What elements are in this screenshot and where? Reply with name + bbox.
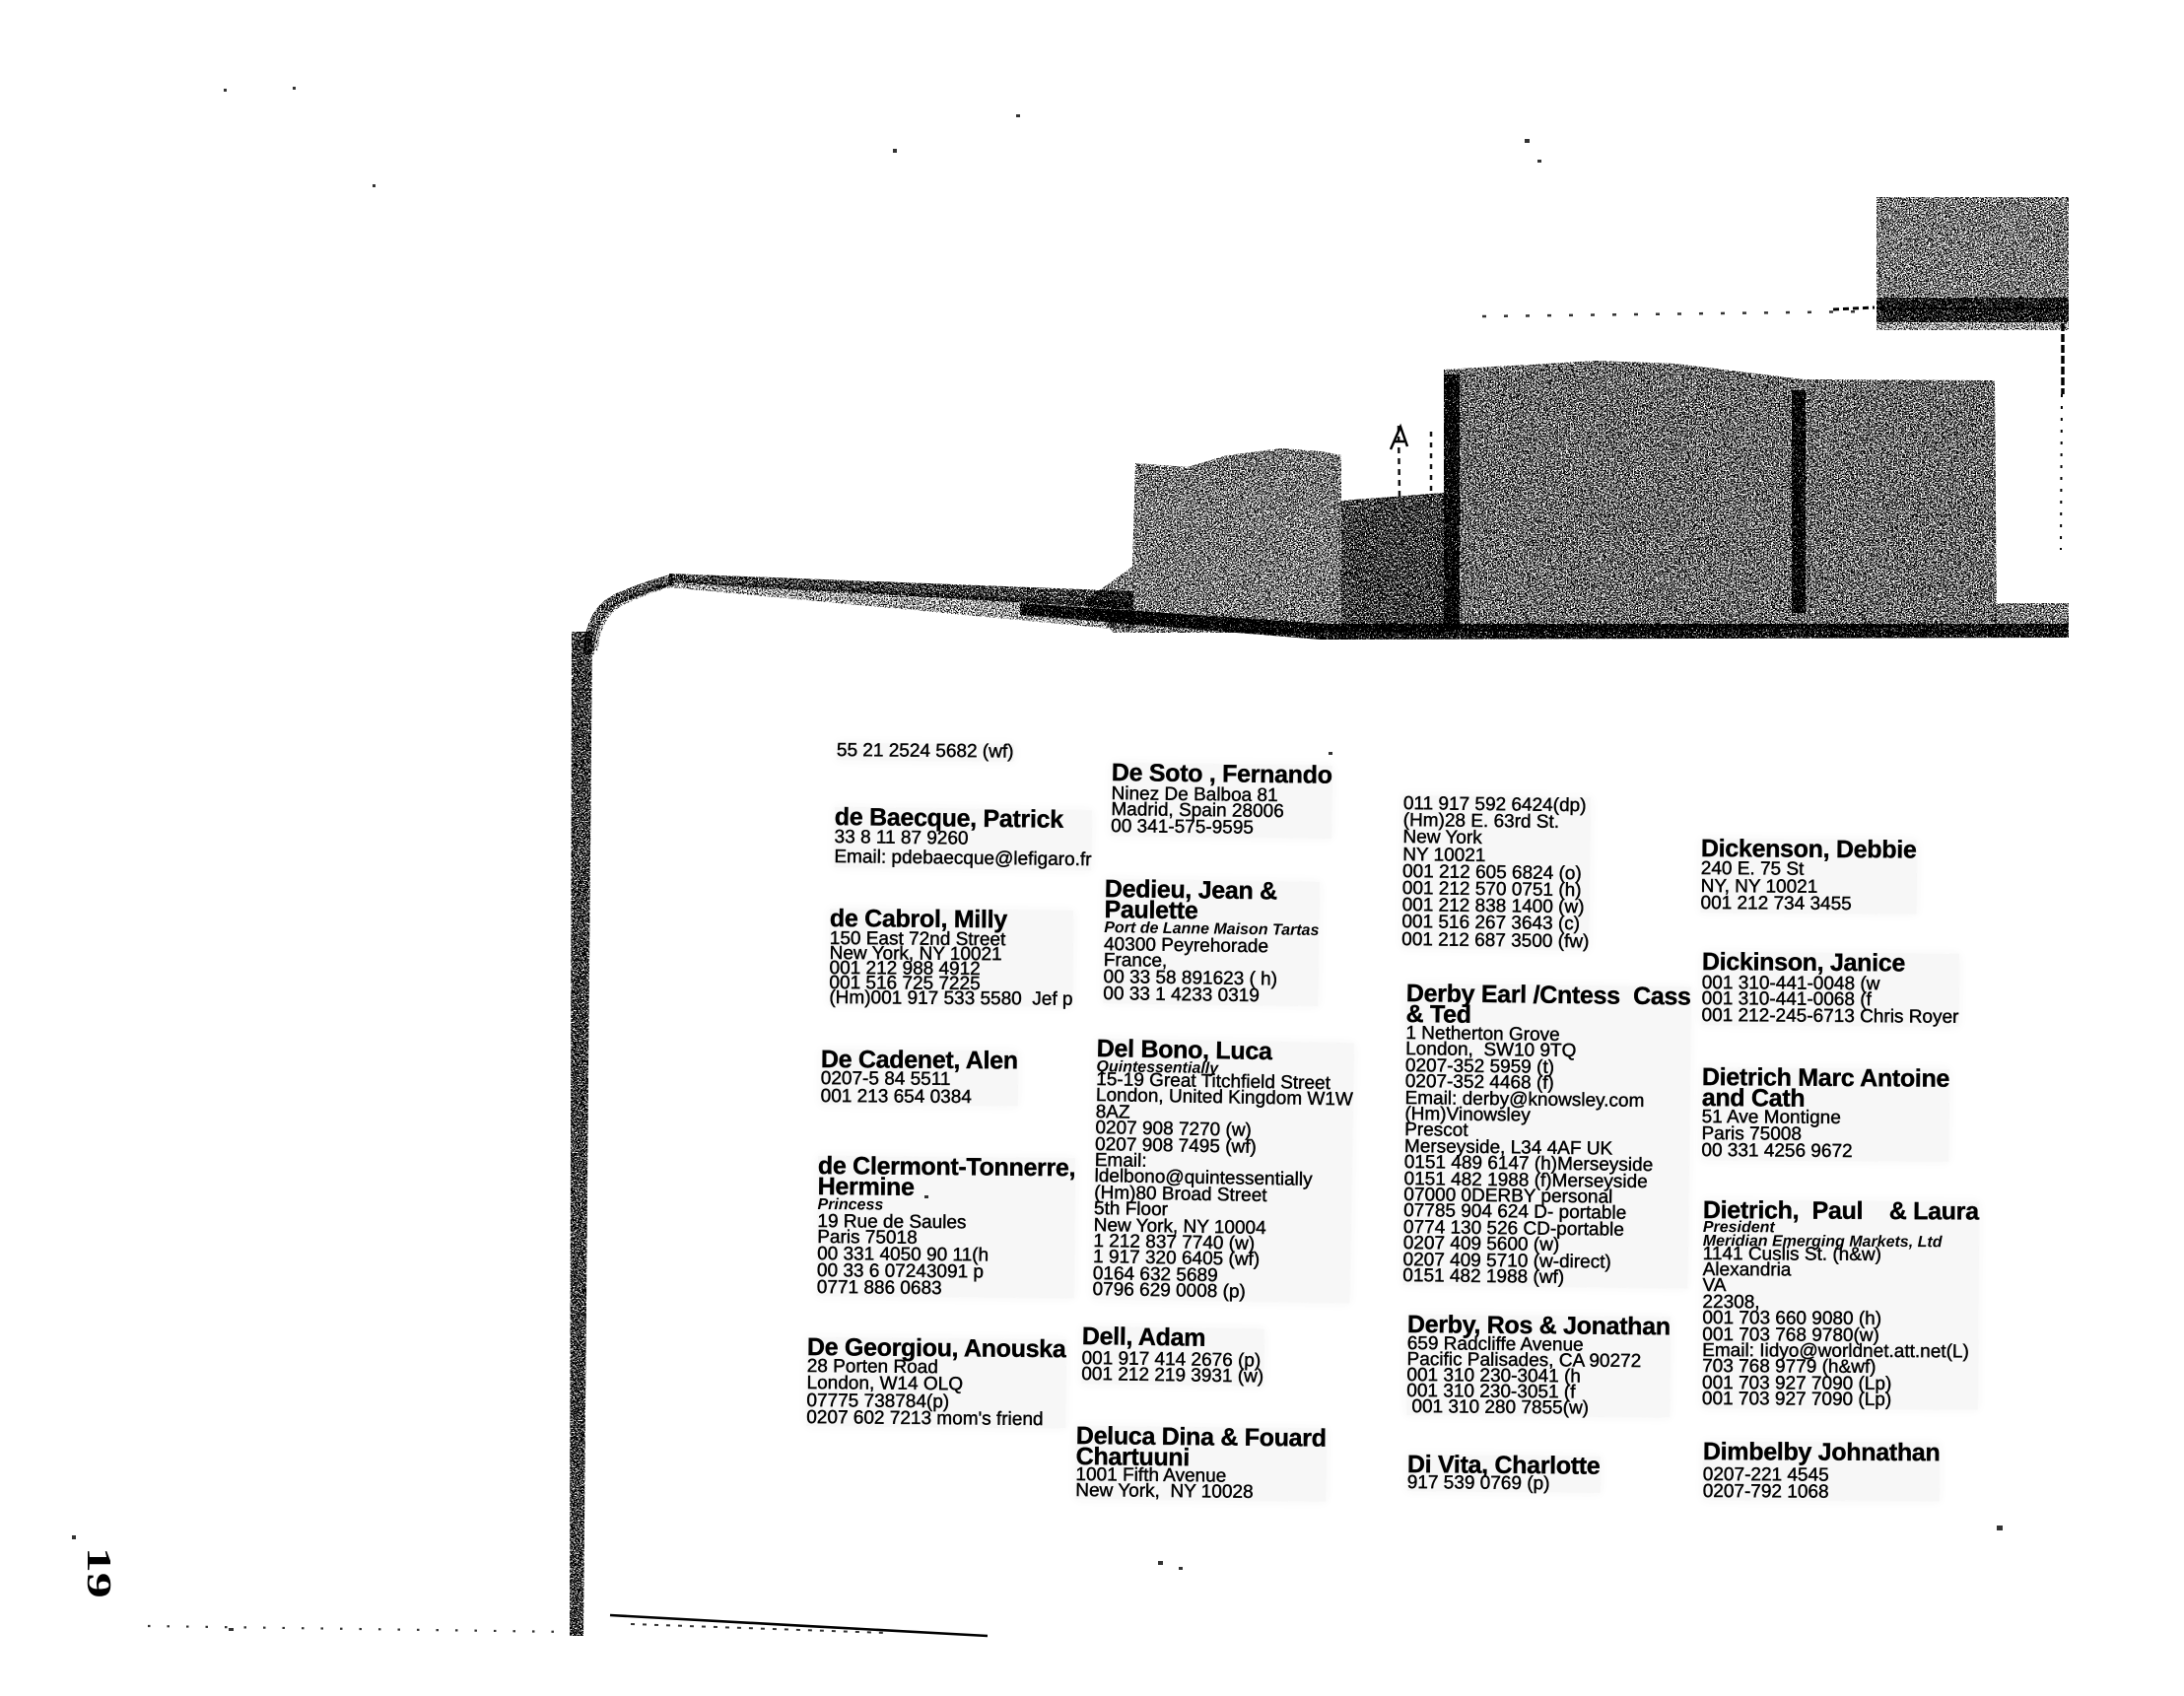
svg-text:19: 19 (80, 1547, 118, 1598)
